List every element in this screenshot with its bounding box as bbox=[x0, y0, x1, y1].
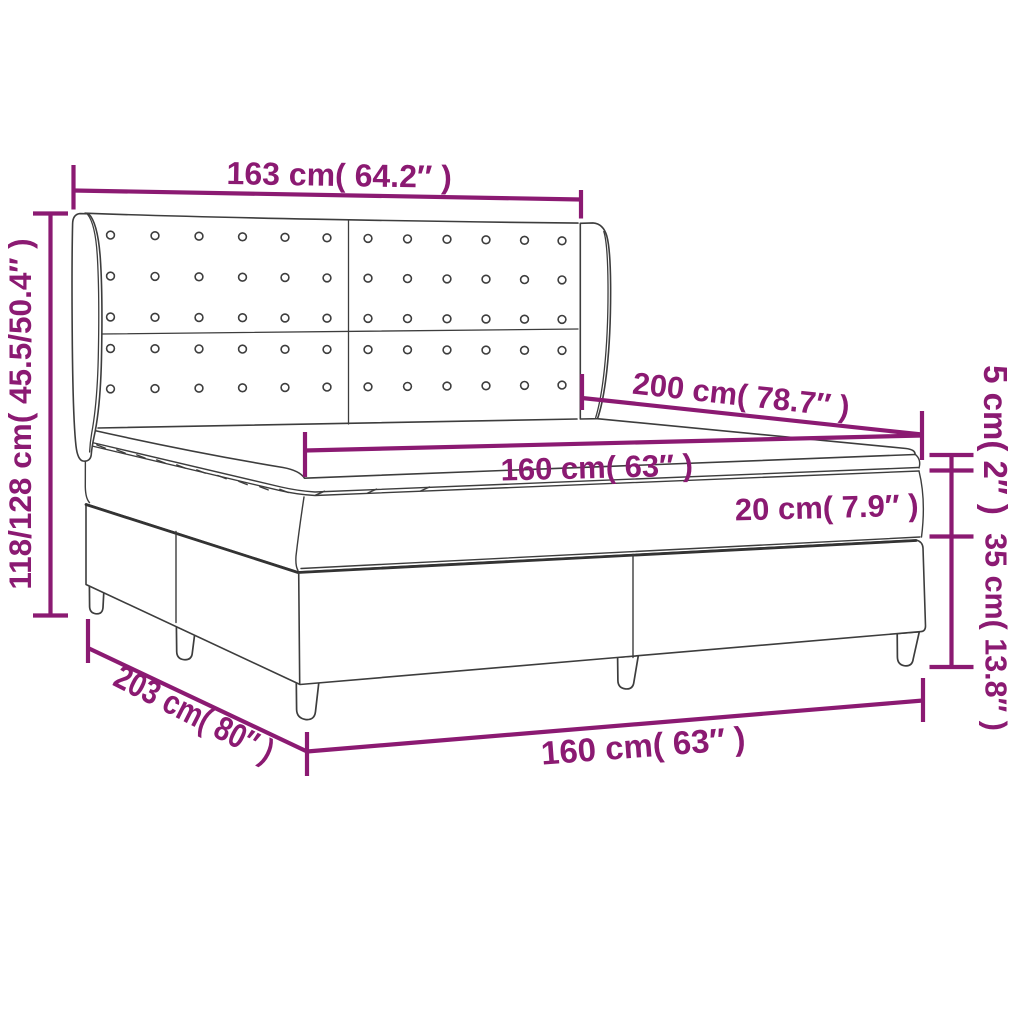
svg-text:160 cm( 63″ ): 160 cm( 63″ ) bbox=[500, 447, 693, 487]
svg-text:163 cm( 64.2″ ): 163 cm( 64.2″ ) bbox=[226, 155, 452, 195]
svg-text:118/128 cm( 45.5/50.4″ ): 118/128 cm( 45.5/50.4″ ) bbox=[2, 238, 38, 589]
svg-text:5 cm( 2″ ): 5 cm( 2″ ) bbox=[977, 365, 1014, 515]
svg-text:35 cm( 13.8″ ): 35 cm( 13.8″ ) bbox=[979, 533, 1013, 731]
svg-text:20 cm( 7.9″ ): 20 cm( 7.9″ ) bbox=[734, 488, 919, 528]
